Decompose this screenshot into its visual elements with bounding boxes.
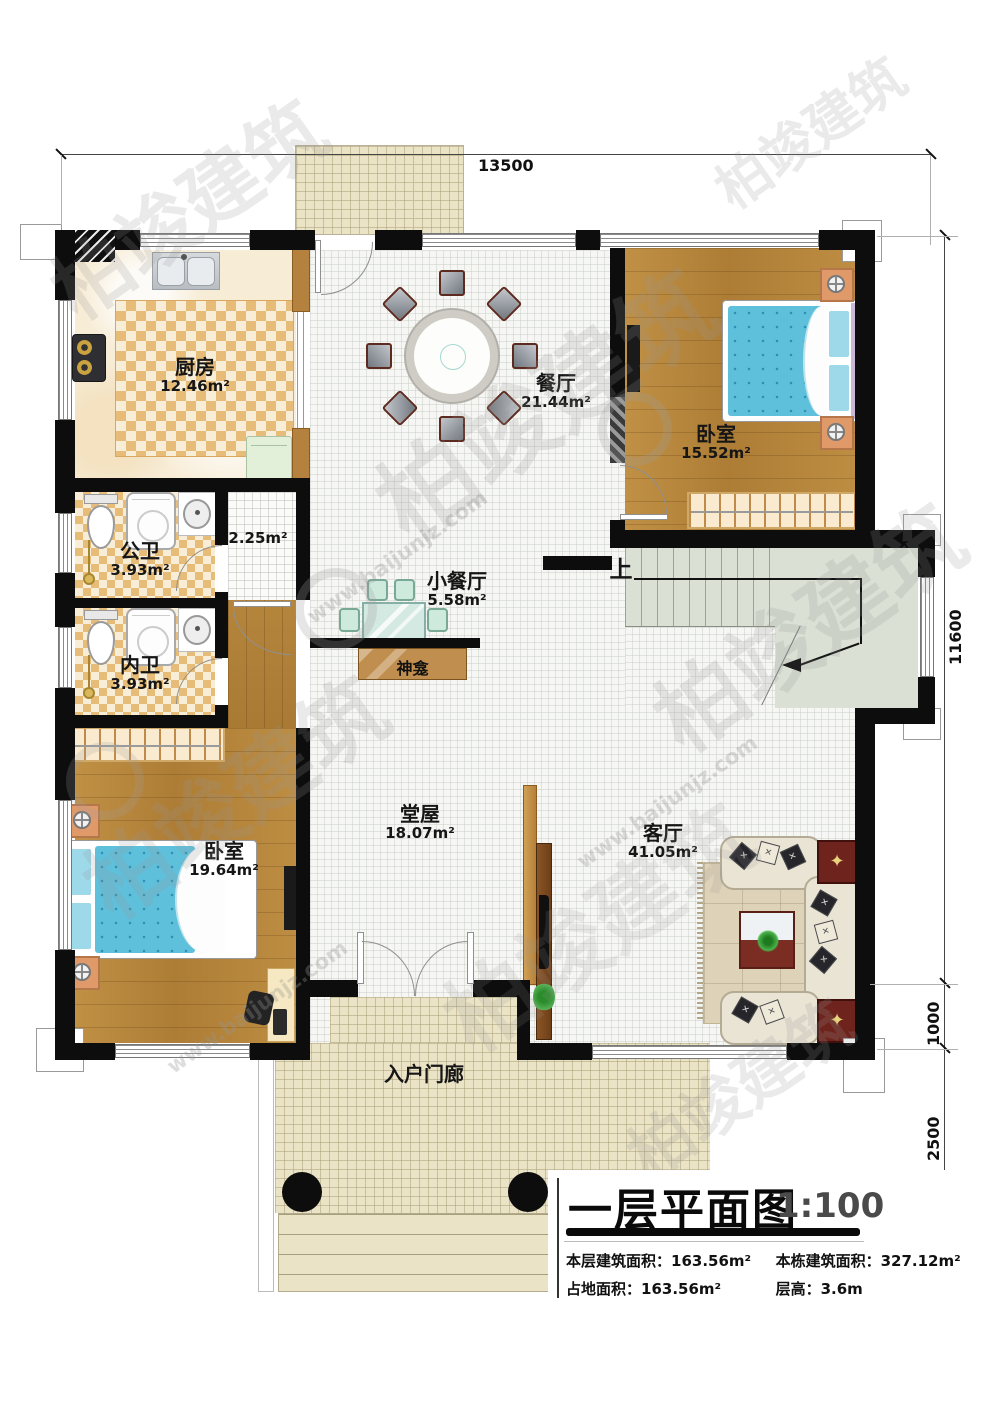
floor-drain (83, 687, 95, 699)
stove (72, 334, 106, 382)
wall (55, 598, 215, 608)
stat-value: 163.56m² (671, 1252, 751, 1270)
shrine-cabinet: 神龛 (358, 648, 467, 680)
tv (284, 866, 296, 930)
wall (215, 592, 228, 658)
stat-value: 327.12m² (881, 1252, 961, 1270)
window (58, 627, 72, 688)
kitchen-sink (152, 252, 220, 290)
bathroom-sink (178, 492, 216, 536)
wall (819, 230, 875, 250)
wall (787, 1043, 875, 1060)
wall (543, 556, 612, 570)
room-label-kitchen: 厨房12.46m² (160, 356, 230, 395)
tv-partition-light (523, 785, 537, 985)
dimension-line-right (944, 237, 945, 1202)
room-label-corridor: 2.25m² (228, 530, 287, 547)
sliding-door-panel (292, 428, 310, 484)
room-label-public-bath: 公卫3.93m² (110, 540, 169, 579)
plant (533, 982, 555, 1012)
wall (918, 530, 935, 577)
dining-table (404, 308, 500, 404)
extension-line (870, 984, 958, 985)
dining-chair (439, 416, 465, 442)
room-label-inner-bath: 内卫3.93m² (110, 654, 169, 693)
title-underline (566, 1228, 860, 1236)
extension-line (877, 1049, 958, 1050)
plant (757, 930, 779, 952)
shrine-label: 神龛 (359, 655, 466, 679)
wall (296, 728, 310, 1045)
dimension-line-top (61, 154, 931, 155)
porch-steps (278, 1213, 550, 1292)
back-porch-divider (413, 146, 414, 232)
window (600, 233, 819, 247)
understair-floor (625, 627, 775, 708)
porch-left-edge (258, 1058, 274, 1292)
nightstand (820, 268, 854, 302)
stat-label: 占地面积： (566, 1280, 641, 1298)
dimension-value-top: 13500 (478, 156, 534, 175)
wall (517, 997, 530, 1060)
window (592, 1045, 787, 1059)
stat-label: 本栋建筑面积： (776, 1252, 881, 1270)
window (58, 513, 72, 573)
door-leaf (467, 932, 474, 984)
floor-plan-canvas: 神龛 ✕ ✕ ✕ ✕ ✕ ✕ ✕ ✕ ✦ ✦ (0, 0, 1000, 1416)
wall (55, 478, 310, 492)
extension-line (877, 236, 958, 237)
stat-label: 本层建筑面积： (566, 1252, 671, 1270)
fridge (246, 436, 292, 480)
window (422, 233, 576, 247)
stat-row: 占地面积：163.56m² 层高：3.6m (566, 1278, 863, 1299)
small-dining-chair (427, 608, 448, 632)
room-label-living: 客厅41.05m² (628, 822, 698, 861)
wardrobe (687, 492, 857, 529)
stat-label: 层高： (776, 1280, 821, 1298)
stat-row: 本层建筑面积：163.56m² 本栋建筑面积：327.12m² (566, 1250, 961, 1271)
room-label-entry-porch: 入户门廊 (384, 1063, 464, 1085)
wall (250, 1043, 310, 1060)
toilet (84, 610, 118, 620)
wall (55, 715, 228, 728)
plan-scale: 1:100 (776, 1186, 884, 1226)
dimension-value-right-upper: 11600 (946, 575, 965, 665)
wall (610, 530, 935, 548)
wall (610, 248, 625, 397)
watermark-logo-ring (66, 742, 144, 820)
window (140, 233, 250, 247)
coffee-table (739, 911, 795, 969)
nightstand (820, 416, 854, 450)
small-dining-chair (394, 579, 415, 601)
dimension-tick (939, 977, 950, 988)
floor-drain-stem (88, 540, 90, 574)
stair-direction-line (634, 578, 862, 580)
porch-column (508, 1172, 548, 1212)
extension-line (61, 155, 62, 225)
wall (473, 980, 530, 997)
window (115, 1044, 250, 1058)
dining-chair (512, 343, 538, 369)
porch-column (282, 1172, 322, 1212)
wall (855, 248, 875, 532)
wall (55, 420, 75, 513)
wall (576, 230, 600, 250)
rug-fringe (697, 862, 703, 1022)
stairs-up-label: 上 (610, 558, 633, 584)
tv (627, 325, 640, 392)
stat-value: 163.56m² (641, 1280, 721, 1298)
dimension-value-right-lower: 2500 (924, 1095, 943, 1161)
stat-value: 3.6m (821, 1280, 863, 1298)
floor-drain-stem (88, 655, 90, 688)
floor-drain (83, 573, 95, 585)
room-label-bedroom1: 卧室15.52m² (681, 423, 751, 462)
bed (722, 300, 862, 422)
dimension-value-right-mid: 1000 (924, 988, 943, 1046)
dining-chair (439, 270, 465, 296)
back-porch-floor (295, 145, 464, 235)
stair-direction-line (860, 578, 862, 644)
room-label-hall: 堂屋18.07m² (385, 803, 455, 842)
wall (310, 980, 358, 997)
window (58, 300, 72, 420)
watermark-text: 柏竣建筑 (697, 35, 919, 224)
sliding-door-track (303, 312, 304, 428)
sliding-door-track (297, 312, 298, 428)
room-label-dining: 餐厅21.44m² (521, 372, 591, 411)
end-table: ✦ (817, 999, 857, 1043)
extension-line (930, 155, 931, 245)
wall (55, 230, 75, 300)
room-label-small-dining: 小餐厅5.58m² (427, 570, 487, 609)
sliding-door-panel (292, 248, 310, 312)
window (58, 800, 72, 950)
wall (250, 230, 315, 250)
bathroom-sink (178, 608, 216, 652)
title-block-border (557, 1178, 559, 1298)
wall (375, 230, 422, 250)
dining-chair (366, 343, 392, 369)
stair-arrow-head (782, 658, 801, 672)
window (920, 577, 934, 677)
title-underline-thin (564, 1241, 864, 1242)
watermark-logo-ring (598, 392, 672, 466)
end-table: ✦ (817, 840, 857, 884)
wall (610, 520, 625, 548)
toilet (84, 494, 118, 504)
dimension-tick (939, 229, 950, 240)
wall (530, 1043, 592, 1060)
tv (539, 895, 549, 969)
title-block: 一层平面图 1:100 本层建筑面积：163.56m² 本栋建筑面积：327.1… (548, 1170, 1000, 1316)
room-label-bedroom2: 卧室19.64m² (189, 840, 259, 879)
back-porch-divider (395, 146, 396, 232)
wall (55, 1043, 115, 1060)
stair-treads (625, 548, 775, 626)
wall (855, 708, 875, 1060)
wall (215, 492, 228, 545)
watermark-logo-ring (295, 568, 377, 650)
